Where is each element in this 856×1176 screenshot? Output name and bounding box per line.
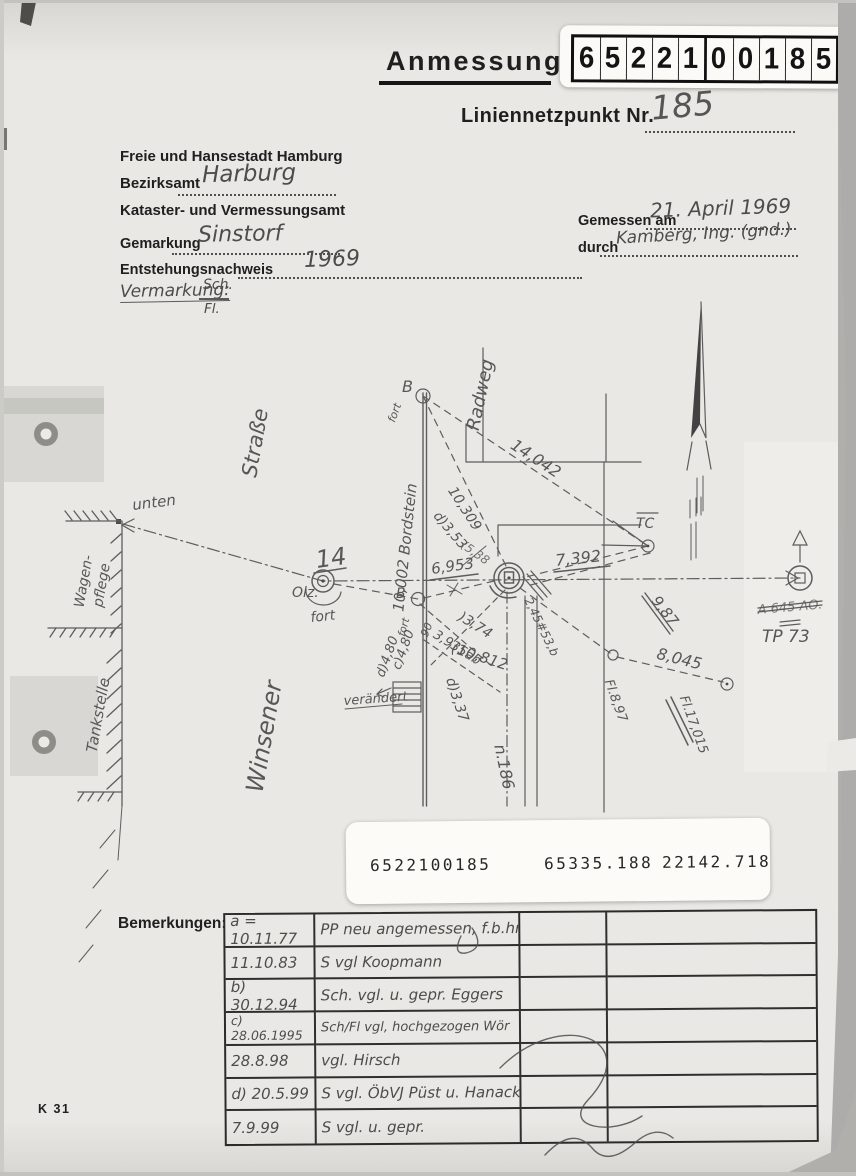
- label-point-14: 14: [314, 542, 348, 574]
- label-fort-left: fort: [310, 607, 337, 626]
- sketch-linework: [48, 302, 822, 1156]
- label-10812: (10,812: [449, 639, 510, 674]
- label-tp73: TP 73: [762, 627, 810, 647]
- point-aux1: [608, 650, 618, 660]
- tape-patch-bottom: [10, 676, 98, 776]
- label-fort-top: fort: [385, 401, 404, 424]
- label-radweg: Radweg: [463, 357, 499, 432]
- label-strasse: Straße: [237, 407, 273, 479]
- label-d337: d)3,37: [442, 676, 471, 724]
- label-winsener: Winsener: [241, 677, 289, 795]
- label-6953: 6,953: [430, 554, 475, 578]
- label-n186: n.186: [490, 742, 518, 791]
- label-7392: 7,392: [554, 546, 602, 570]
- net-point-symbol: [490, 563, 551, 600]
- label-b-mid: B: [396, 586, 406, 602]
- label-tc: TC: [636, 516, 655, 532]
- label-fl897: Fl.8,97: [601, 677, 630, 724]
- label-14042: 14,042: [507, 435, 564, 481]
- label-olz: Olz.: [292, 585, 319, 601]
- label-b-top: B: [402, 377, 413, 396]
- label-fl17015: Fl.17,015: [676, 694, 711, 756]
- scanned-survey-document: Anmessung 6 5 2 2 1 0 0 1 8 5 Liniennetz…: [0, 0, 856, 1176]
- tape-patch-top: [0, 386, 104, 482]
- label-245: 2,45#53,b: [521, 595, 562, 659]
- survey-sketch: Straße Winsener Radweg 10,002 Bordstein …: [0, 0, 856, 1176]
- ray-b-to-tc: [423, 396, 648, 546]
- scan-edges: [0, 0, 856, 1176]
- scan-corner-mark: [20, 0, 36, 26]
- label-unten: unten: [131, 491, 177, 514]
- parcel-lines: [498, 462, 641, 812]
- sketch-labels: Straße Winsener Radweg 10,002 Bordstein …: [72, 357, 823, 794]
- north-arrow-icon: [687, 302, 711, 560]
- signature-flourishes: [457, 928, 673, 1156]
- label-374: )3,74: [454, 609, 494, 643]
- label-8045: 8,045: [655, 644, 704, 674]
